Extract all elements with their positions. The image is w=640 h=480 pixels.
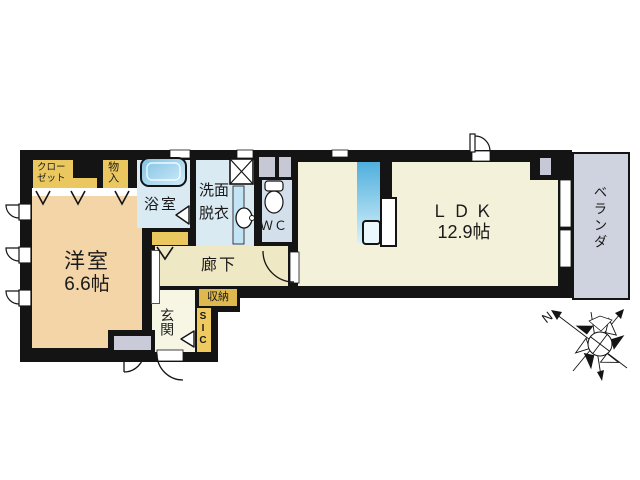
floor-plan: N 洋室 6.6帖 ＬＤＫ 12.9帖 浴室 洗面 脱衣 ＷＣ 廊下 収納 SI… [0,0,640,480]
storage-label: 収納 [199,291,237,304]
western-room-name: 洋室 [32,250,142,274]
compass-rose: N [539,308,627,381]
veranda-label: ベランダ [591,185,607,285]
washing-machine [230,159,253,184]
washbasin [233,186,255,244]
bathtub [141,158,186,186]
hallway-label: 廊下 [201,257,237,275]
window-veranda-2 [560,230,571,267]
closet-label: クロー ゼット [37,163,66,185]
window-veranda-1 [560,180,571,227]
washroom-line2: 脱衣 [199,203,229,226]
wc-label: ＷＣ [256,219,292,234]
porch-door [124,352,144,372]
window-top-2 [237,150,253,158]
closet-line2: ゼット [37,174,66,185]
storage-small-label: 物入 [106,161,119,188]
washroom-label: 洗面 脱衣 [199,180,229,225]
entrance-inner-door-mark [181,331,194,347]
ldk-label: ＬＤＫ 12.9帖 [380,202,548,242]
western-room-size: 6.6帖 [32,274,142,296]
window-top-1 [170,150,190,158]
hallway-ldk-door [263,251,299,283]
toilet [265,181,283,213]
entrance-label: 玄関 [159,308,175,352]
casement-window-2 [6,247,31,263]
entrance-door [157,350,183,380]
ldk-size: 12.9帖 [380,222,548,243]
ldk-name: ＬＤＫ [380,202,548,222]
casement-window-3 [6,290,31,306]
sic-label: SIC [197,311,209,351]
balcony-door [470,134,490,161]
casement-window-1 [6,204,31,220]
window-top-3 [332,150,348,157]
washroom-line1: 洗面 [199,180,229,203]
western-room-label: 洋室 6.6帖 [32,250,142,296]
bath-label: 浴室 [144,196,178,213]
